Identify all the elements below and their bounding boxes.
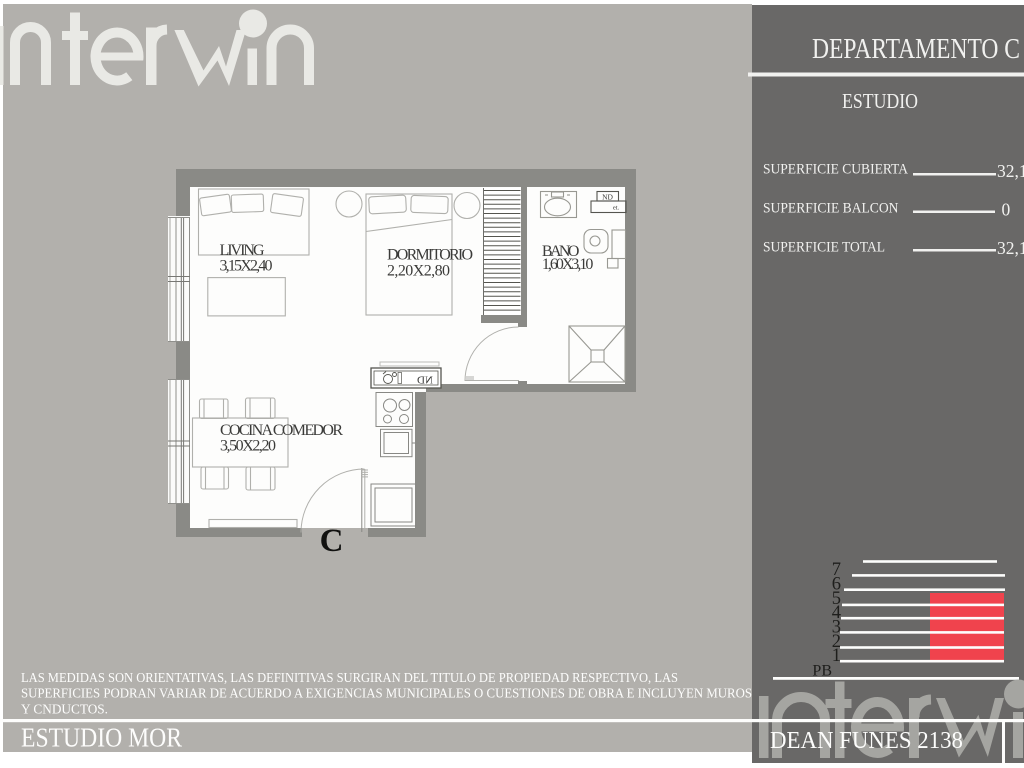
svg-text:COCINA COMEDOR: COCINA COMEDOR — [220, 422, 343, 439]
svg-text:SUPERFICIES PODRAN VARIAR DE A: SUPERFICIES PODRAN VARIAR DE ACUERDO A E… — [21, 686, 752, 701]
svg-text:3,50X2,20: 3,50X2,20 — [220, 438, 276, 455]
svg-text:LIVING: LIVING — [220, 242, 265, 259]
svg-text:0: 0 — [1002, 200, 1011, 220]
svg-text:32,17: 32,17 — [997, 161, 1024, 181]
svg-text:SUPERFICIE BALCON: SUPERFICIE BALCON — [763, 201, 899, 217]
svg-text:DEAN FUNES 2138: DEAN FUNES 2138 — [770, 728, 963, 754]
svg-text:et.: et. — [613, 205, 620, 212]
svg-text:ND: ND — [417, 375, 433, 387]
svg-text:ND: ND — [602, 193, 613, 202]
svg-text:DEPARTAMENTO C: DEPARTAMENTO C — [812, 33, 1020, 65]
svg-text:3,15X2,40: 3,15X2,40 — [220, 258, 273, 275]
svg-text:PB: PB — [812, 663, 832, 680]
svg-text:LAS MEDIDAS SON ORIENTATIVAS,: LAS MEDIDAS SON ORIENTATIVAS, LAS DEFINI… — [21, 670, 678, 685]
svg-text:1,60X3,10: 1,60X3,10 — [542, 256, 594, 273]
svg-text:DORMITORIO: DORMITORIO — [387, 247, 473, 264]
svg-text:C: C — [320, 523, 344, 559]
svg-text:SUPERFICIE CUBIERTA: SUPERFICIE CUBIERTA — [763, 162, 908, 178]
svg-text:32,17: 32,17 — [997, 238, 1024, 258]
svg-text:1: 1 — [832, 646, 841, 666]
svg-text:ESTUDIO MOR: ESTUDIO MOR — [21, 723, 182, 753]
svg-text:ESTUDIO: ESTUDIO — [842, 89, 918, 113]
svg-text:Y CNDUCTOS.: Y CNDUCTOS. — [21, 702, 108, 717]
svg-text:2,20X2,80: 2,20X2,80 — [387, 263, 450, 280]
svg-text:SUPERFICIE TOTAL: SUPERFICIE TOTAL — [763, 240, 885, 256]
